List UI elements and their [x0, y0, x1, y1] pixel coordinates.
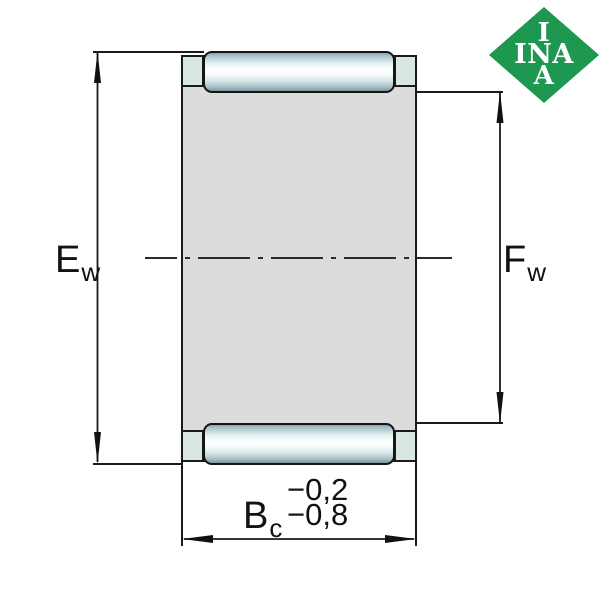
fw-label-base: F	[503, 239, 526, 281]
bearing-technical-drawing: Ew Fw Bc −0,2 −0,8 I INA A	[0, 0, 600, 600]
fw-arrow-down-icon	[497, 392, 504, 424]
ew-label-base: E	[55, 239, 80, 281]
needle-roller-bottom	[203, 423, 395, 465]
bc-label-base: B	[243, 495, 268, 537]
ew-arrow-up-icon	[94, 51, 101, 83]
fw-arrow-up-icon	[497, 91, 504, 123]
fw-label: Fw	[503, 241, 546, 279]
cage-tab-top-left	[181, 55, 204, 87]
cage-tab-bottom-left	[181, 430, 204, 462]
bc-tolerance: −0,2 −0,8	[287, 477, 348, 527]
bc-label-sub: c	[269, 513, 282, 543]
bc-label: Bc	[243, 497, 282, 535]
ina-logo-line3: A	[534, 66, 555, 87]
needle-roller-top	[203, 51, 395, 93]
bc-tolerance-lower: −0,8	[287, 502, 348, 527]
cage-body	[181, 55, 417, 462]
cage-tab-top-right	[394, 55, 417, 87]
fw-label-sub: w	[527, 257, 546, 287]
ew-label-sub: w	[81, 257, 100, 287]
ew-arrow-down-icon	[94, 432, 101, 464]
ew-label: Ew	[55, 241, 100, 279]
cage-tab-bottom-right	[394, 430, 417, 462]
ina-logo: I INA A	[489, 7, 599, 103]
